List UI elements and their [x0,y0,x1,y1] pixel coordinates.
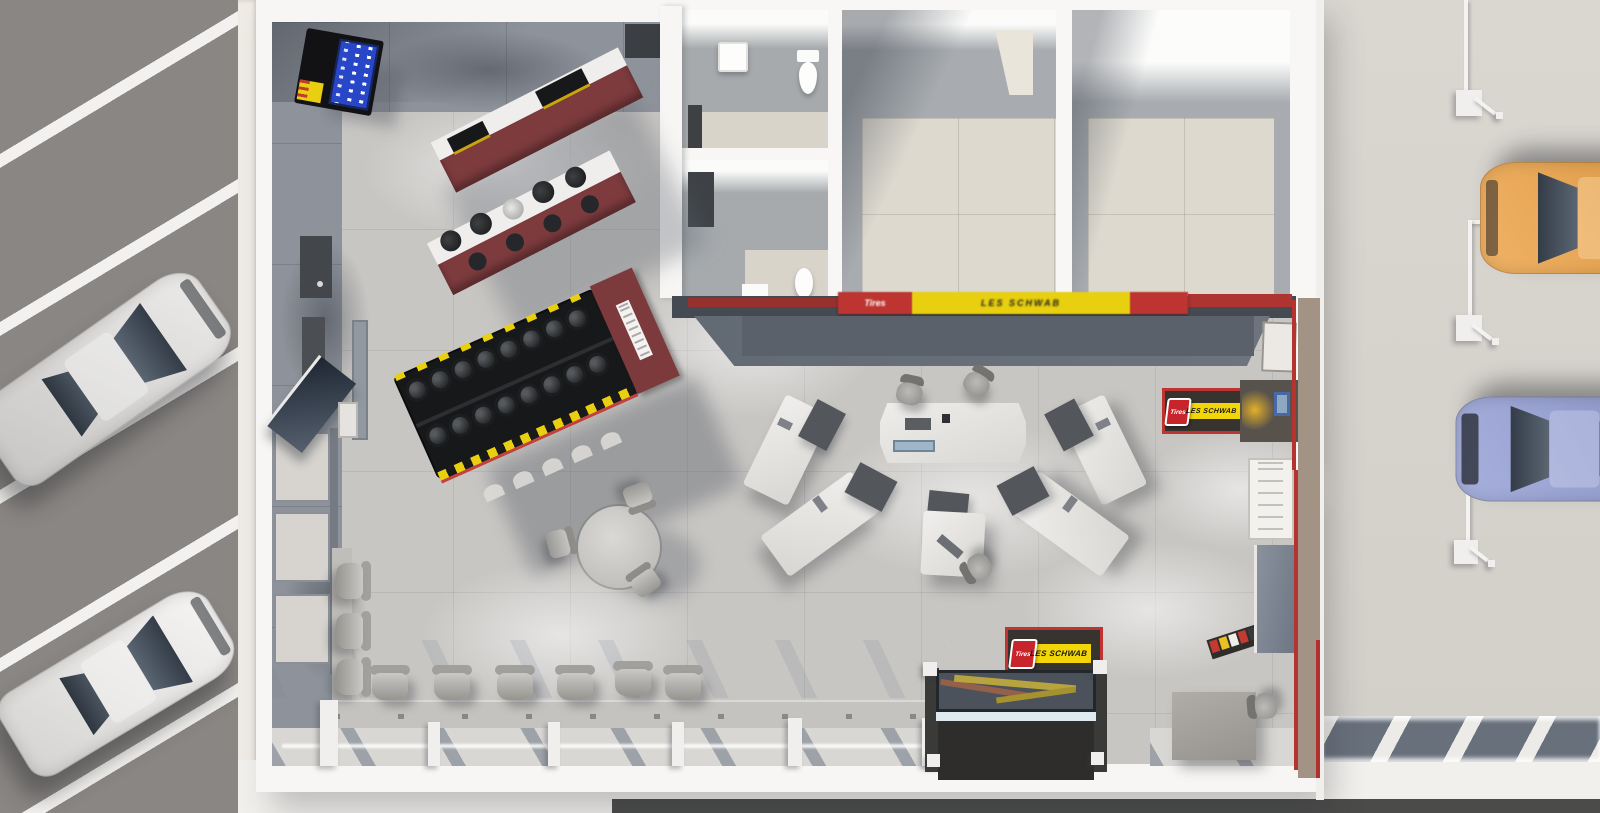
chair-seat [615,669,651,696]
wall-banner-text: LES SCHWAB [981,298,1061,308]
vestibule-post [927,754,940,767]
counter-phone [942,414,950,423]
restroom-2 [682,160,828,298]
banner-red-strip-left [688,298,840,307]
office-chair [1246,690,1280,723]
floor-mat-text: LES SCHWAB [1185,408,1236,415]
chair-seat [434,673,470,700]
car-windshield [1511,406,1549,492]
niche-hook [317,281,323,287]
chair-seat [497,673,533,700]
chair-seat [336,613,363,649]
bench-rail-bottom [330,700,950,728]
tire [562,304,592,334]
back-room-middle-shadow [842,10,1056,298]
chair-seat [1254,692,1278,720]
counter-keyboard [905,418,931,430]
mullion-post [320,700,338,766]
service-storefront-glass [1322,716,1600,762]
waiting-chair [367,664,413,702]
waiting-chair [610,660,656,698]
vestibule-body [938,721,1094,780]
restroom-1 [682,10,828,148]
wall-partition [1056,0,1072,298]
side-kiosk-cabinet [1172,692,1256,760]
tires-badge-text: Tires [1170,409,1186,416]
floor-mat-sign: Tires LES SCHWAB [1162,388,1252,434]
waiting-chair [492,664,538,702]
tire [582,349,612,379]
red-trim [1316,640,1320,778]
vestibule-post [1091,752,1104,765]
counter-tray [893,440,935,452]
vestibule-glass-roof [936,670,1096,712]
wall-display-door [1248,458,1294,540]
floor-mat-bar: Tires LES SCHWAB [1182,403,1241,419]
vestibule-light-strip [936,712,1096,721]
car-grille [1462,413,1479,484]
entrance-sign-text: LES SCHWAB [1029,649,1087,658]
wall-banner: Tires LES SCHWAB [838,292,1188,314]
toilet [799,62,817,94]
sales-counter [880,403,1026,463]
blue-sedan [1456,397,1600,502]
beverage-vending-machine [294,28,384,116]
les-schwab-floor-mat: Tires LES SCHWAB [1162,388,1252,434]
wall-kiosk-tray [338,402,358,438]
chair-seat [557,673,593,700]
toilet-tank [797,50,819,62]
air-line [1468,220,1472,317]
vending-label [297,79,324,103]
air-line-tip [1492,338,1499,345]
waiting-chair [552,664,598,702]
road-strip [612,799,1600,813]
wall-niche [300,236,332,298]
air-line [1464,0,1468,92]
vestibule-post [1093,660,1107,674]
wall-banner-badge-text: Tires [864,298,885,308]
mullion-post [428,722,440,766]
banner-red-strip-right [1188,294,1292,307]
car-roof [1578,177,1600,260]
back-room-right-shadow [1072,10,1290,298]
kiosk-glow [1242,388,1274,432]
waiting-chair [429,664,475,702]
rail-fixings [334,714,946,719]
wall-partition [1290,0,1316,298]
rack-end-sign [616,300,653,361]
toilet [795,268,813,298]
waiting-chair [660,664,706,702]
soffit-inner [742,316,1254,356]
left-window [274,512,330,582]
waiting-chair [334,608,372,654]
wall-partition [828,0,842,298]
chair-seat [372,673,408,700]
chair-seat [665,673,701,700]
red-trim [1292,300,1296,470]
mullion-post [548,722,560,766]
wall-banner-yellow: LES SCHWAB [912,292,1130,314]
entry-door-post [788,718,802,766]
kiosk-screen [1274,392,1290,416]
entrance-vestibule [925,662,1107,780]
entrance-sign-bar: Tires LES SCHWAB [1026,644,1090,663]
car-windshield [1538,172,1578,264]
sink [718,42,748,72]
car-roof [1549,410,1599,488]
sidewalk-west [238,0,258,813]
store-overhead-rendering: Tires LES SCHWAB [0,0,1600,813]
wall-partition [668,148,830,160]
chair-seat [336,563,363,599]
car-grille [1486,180,1497,256]
back-room-right [1072,10,1290,298]
restroom-1-tile [700,112,828,148]
wall-banner-tires-block: Tires [838,292,912,314]
waiting-chair [334,558,372,604]
mullion-post [672,722,684,766]
orange-suv [1480,162,1600,274]
wall-kiosk-right [1240,380,1298,442]
restroom-cabinet [688,105,702,148]
wall-banner-red-end [1130,292,1188,314]
air-line-tip [1496,112,1503,119]
glass-reflection-streak [282,744,942,748]
chair-seat [336,659,363,695]
vestibule-post [923,662,937,676]
air-line-tip [1488,560,1495,567]
back-room-middle [842,10,1056,298]
